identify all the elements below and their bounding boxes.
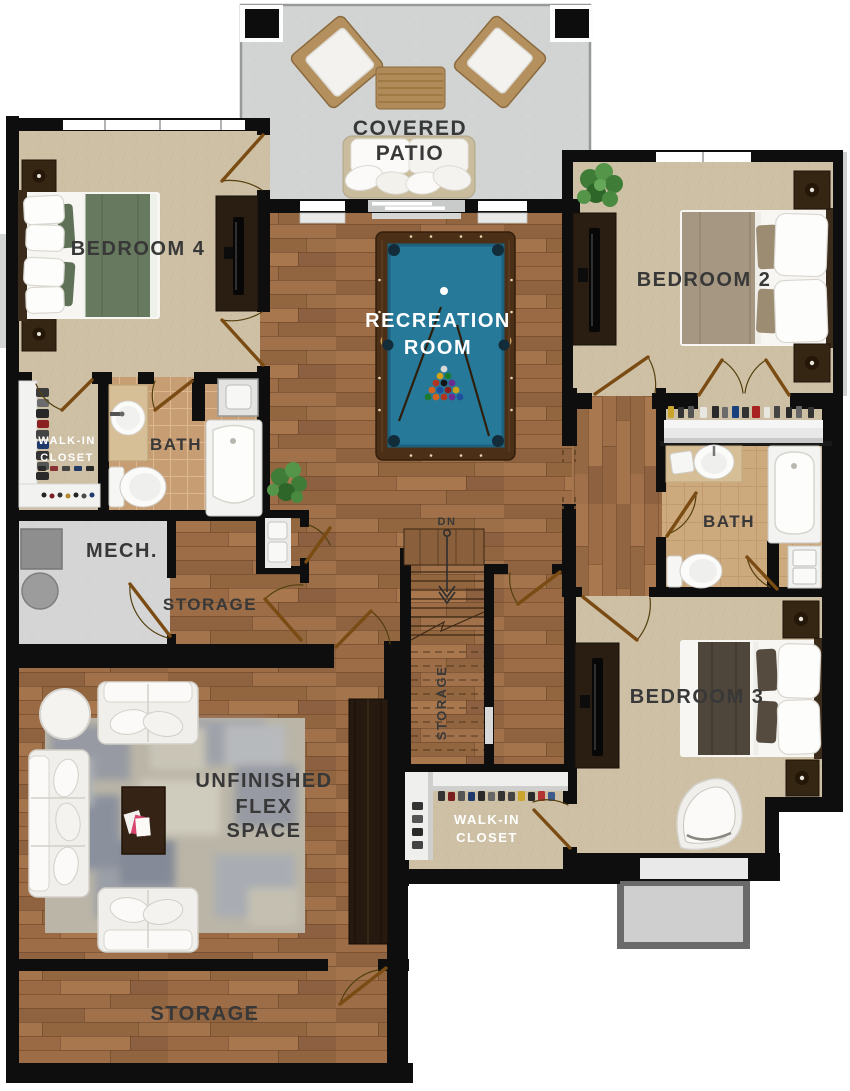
svg-text:WALK-IN: WALK-IN [38,435,96,447]
svg-text:BEDROOM 2: BEDROOM 2 [637,269,772,291]
svg-text:CLOSET: CLOSET [40,452,94,464]
svg-text:BEDROOM 3: BEDROOM 3 [630,686,765,708]
svg-text:BEDROOM 4: BEDROOM 4 [71,238,206,260]
svg-text:WALK-IN: WALK-IN [454,812,520,827]
svg-text:RECREATION: RECREATION [365,310,511,332]
svg-text:CLOSET: CLOSET [456,830,518,845]
svg-text:STORAGE: STORAGE [150,1003,259,1025]
svg-text:SPACE: SPACE [227,820,302,842]
svg-text:FLEX: FLEX [235,796,292,818]
svg-text:DN: DN [438,516,457,528]
svg-text:COVERED: COVERED [353,117,467,140]
svg-text:ROOM: ROOM [404,337,472,359]
svg-text:BATH: BATH [150,435,202,454]
svg-text:STORAGE: STORAGE [434,666,449,741]
svg-text:UNFINISHED: UNFINISHED [195,770,332,792]
svg-text:PATIO: PATIO [376,142,445,165]
svg-text:BATH: BATH [703,512,755,531]
svg-text:STORAGE: STORAGE [163,595,257,614]
svg-text:MECH.: MECH. [86,540,158,562]
